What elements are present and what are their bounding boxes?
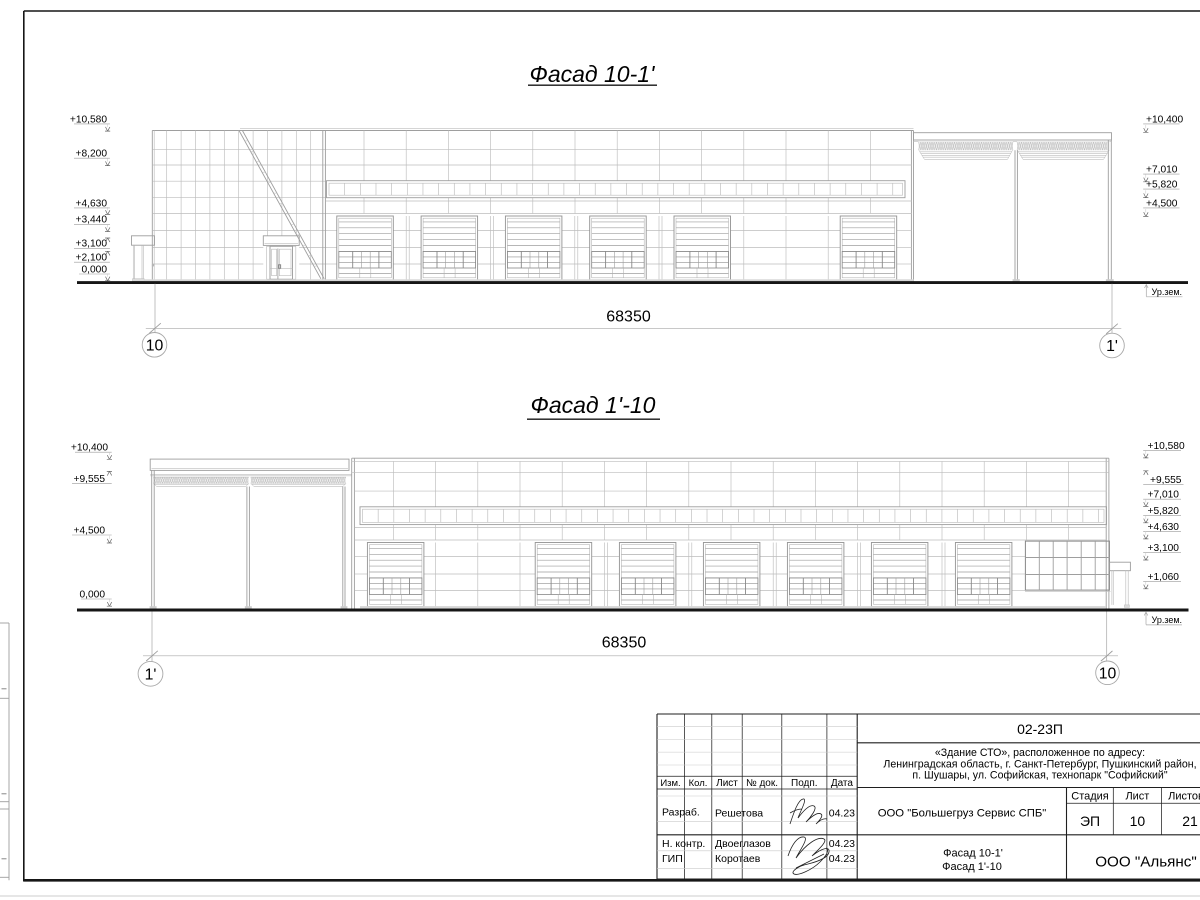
svg-text:1': 1' (1106, 338, 1118, 355)
svg-text:Фасад 10-1': Фасад 10-1' (530, 61, 657, 87)
svg-text:Листов: Листов (1168, 791, 1200, 803)
svg-text:04.23: 04.23 (829, 808, 855, 820)
svg-text:68350: 68350 (602, 634, 647, 651)
svg-text:ГИП: ГИП (662, 853, 683, 865)
svg-text:ЭП: ЭП (1080, 813, 1100, 829)
svg-text:10: 10 (146, 337, 164, 354)
svg-text:68350: 68350 (606, 308, 651, 325)
svg-text:п. Шушары, ул. Софийская, техн: п. Шушары, ул. Софийская, технопарк "Соф… (912, 770, 1167, 782)
svg-text:Кол.: Кол. (689, 778, 708, 789)
svg-text:04.23: 04.23 (829, 853, 855, 865)
svg-text:Фасад 10-1': Фасад 10-1' (943, 848, 1003, 860)
svg-text:Ур.зем.: Ур.зем. (1152, 615, 1183, 625)
svg-text:ООО "Большегруз Сервис СПБ": ООО "Большегруз Сервис СПБ" (878, 808, 1047, 820)
svg-text:1': 1' (145, 666, 157, 683)
svg-text:10: 10 (1130, 813, 1146, 829)
svg-text:Фасад 1'-10: Фасад 1'-10 (942, 861, 1002, 873)
svg-text:Решетова: Решетова (715, 808, 763, 820)
svg-text:Лист: Лист (716, 778, 738, 789)
svg-text:Ур.зем.: Ур.зем. (1152, 287, 1183, 297)
svg-text:Дата: Дата (831, 778, 854, 789)
svg-text:04.23: 04.23 (829, 838, 855, 850)
svg-text:Стадия: Стадия (1071, 791, 1109, 803)
svg-text:10: 10 (1099, 665, 1117, 682)
svg-text:Ленинградская область, г. Санк: Ленинградская область, г. Санкт-Петербур… (883, 758, 1196, 770)
svg-text:Изм.: Изм. (660, 778, 680, 789)
svg-text:№ док.: № док. (746, 778, 778, 789)
svg-text:«Здание СТО», расположенное по: «Здание СТО», расположенное по адресу: (935, 747, 1145, 759)
svg-text:Разраб.: Разраб. (662, 807, 700, 819)
svg-text:Коротаев: Коротаев (715, 853, 761, 865)
svg-text:ООО "Альянс": ООО "Альянс" (1095, 854, 1197, 871)
svg-text:21: 21 (1182, 813, 1198, 829)
svg-text:Подп.: Подп. (791, 778, 818, 789)
svg-text:Н. контр.: Н. контр. (662, 838, 705, 850)
svg-text:Двоеглазов: Двоеглазов (715, 838, 771, 850)
svg-text:Фасад 1'-10: Фасад 1'-10 (531, 392, 656, 418)
svg-text:02-23П: 02-23П (1017, 721, 1063, 737)
svg-text:Лист: Лист (1125, 791, 1149, 803)
